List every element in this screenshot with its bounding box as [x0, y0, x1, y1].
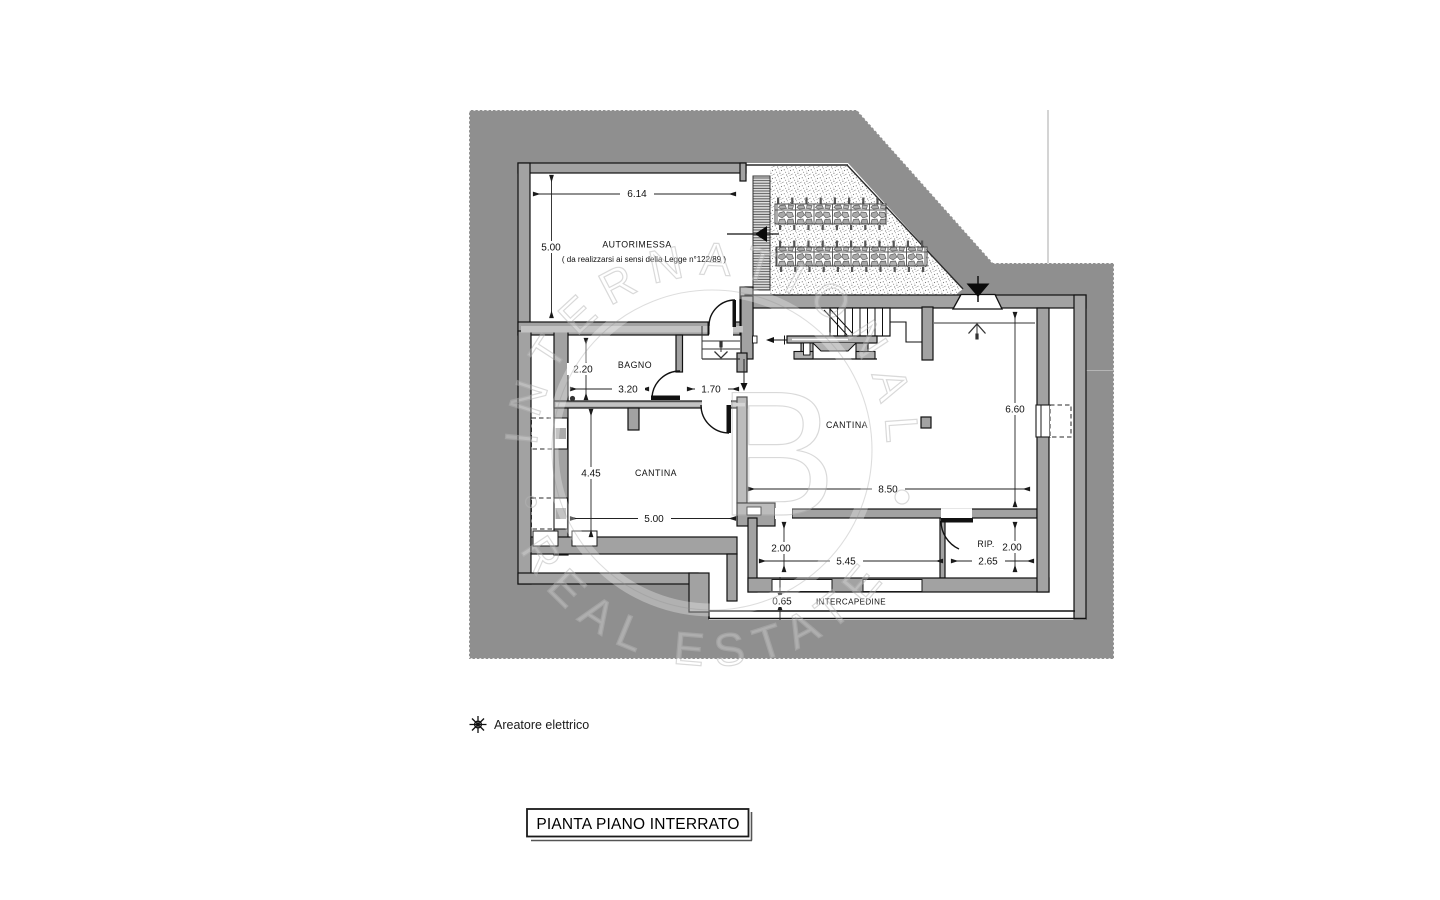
svg-text:PIANTA PIANO INTERRATO: PIANTA PIANO INTERRATO: [536, 816, 739, 833]
svg-text:3.20: 3.20: [618, 385, 638, 396]
svg-text:B: B: [718, 354, 837, 553]
svg-text:5.00: 5.00: [644, 514, 664, 525]
svg-text:2.65: 2.65: [978, 557, 998, 568]
svg-text:2.00: 2.00: [1002, 543, 1022, 554]
svg-text:4.45: 4.45: [581, 469, 601, 480]
svg-text:5.00: 5.00: [541, 243, 561, 254]
svg-text:RIP.: RIP.: [977, 539, 994, 549]
svg-text:BAGNO: BAGNO: [618, 360, 652, 370]
svg-text:Areatore elettrico: Areatore elettrico: [494, 718, 589, 732]
svg-text:CANTINA: CANTINA: [635, 468, 677, 478]
svg-text:6.14: 6.14: [627, 189, 647, 200]
svg-text:6.60: 6.60: [1005, 405, 1025, 416]
